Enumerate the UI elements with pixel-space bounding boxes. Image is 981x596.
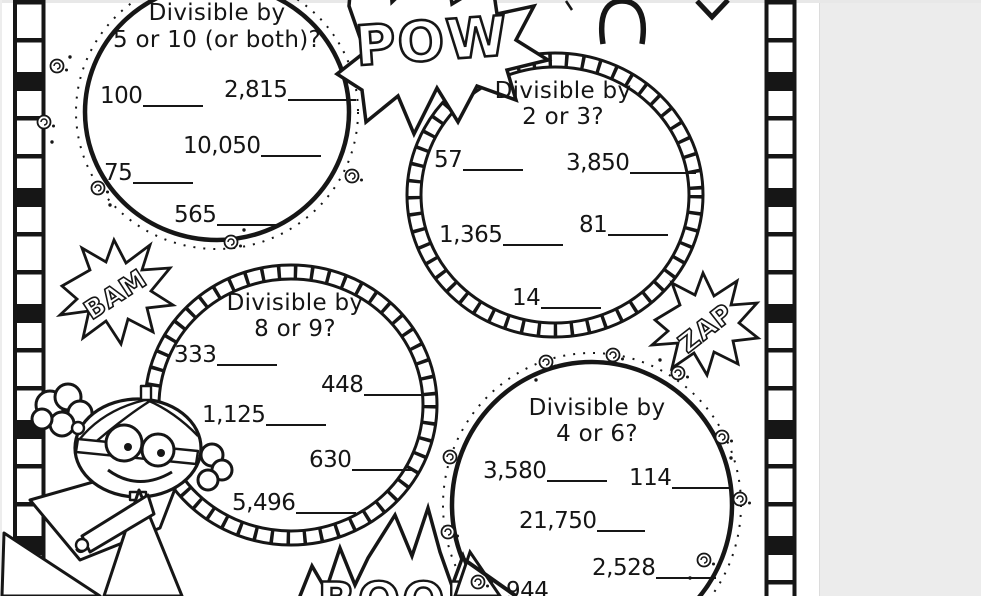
answer-blank — [672, 471, 732, 489]
circle-title-line2: 4 or 6? — [467, 421, 727, 447]
worksheet-item: 81 — [579, 212, 668, 238]
worksheet-item: 10,050 — [183, 133, 321, 159]
worksheet-item: 944 — [506, 578, 548, 596]
answer-blank — [352, 453, 412, 471]
worksheet-item: 565 — [174, 202, 277, 228]
worksheet-item: 75 — [104, 160, 193, 186]
worksheet-item: 630 — [309, 447, 412, 473]
answer-blank — [261, 139, 321, 157]
answer-blank — [217, 348, 277, 366]
circle-title-line1: Divisible by — [165, 290, 425, 316]
circle-title-line2: 5 or 10 (or both)? — [87, 27, 347, 53]
worksheet-item: 14 — [512, 285, 601, 311]
answer-blank — [133, 166, 193, 184]
circle-title-line1: Divisible by — [467, 395, 727, 421]
worksheet-item: 3,580 — [483, 458, 607, 484]
worksheet-item: 5,496 — [232, 490, 356, 516]
answer-blank — [217, 208, 277, 226]
answer-blank — [608, 218, 668, 236]
worksheet-item: 21,750 — [519, 508, 645, 534]
answer-blank — [288, 83, 356, 101]
answer-blank — [630, 156, 696, 174]
circle-title-line1: Divisible by — [433, 78, 693, 104]
top-edge-doodles — [566, 0, 728, 44]
answer-blank — [266, 408, 326, 426]
answer-blank — [143, 89, 203, 107]
answer-blank — [547, 464, 607, 482]
answer-blank — [656, 561, 716, 579]
answer-blank — [503, 228, 563, 246]
answer-blank — [463, 153, 523, 171]
circle-title-line2: 2 or 3? — [433, 104, 693, 130]
pow-text: POW — [353, 4, 511, 79]
circle-title-line2: 8 or 9? — [165, 316, 425, 342]
circle-title-line1: Divisible by — [87, 0, 347, 26]
answer-blank — [296, 496, 356, 514]
worksheet-item: 3,850 — [566, 150, 696, 176]
worksheet-item: 1,365 — [439, 222, 563, 248]
worksheet-item: 1,125 — [202, 402, 326, 428]
worksheet-item: 57 — [434, 147, 523, 173]
worksheet-item: 100 — [100, 83, 203, 109]
worksheet-item: 2,815 — [224, 77, 356, 103]
bam-burst: BAM — [60, 240, 173, 344]
right-filmstrip-border — [765, 0, 797, 596]
answer-blank — [364, 378, 424, 396]
worksheet-item: 448 — [321, 372, 424, 398]
answer-blank — [541, 291, 601, 309]
answer-blank — [597, 514, 645, 532]
worksheet-item: 2,528 — [592, 555, 716, 581]
worksheet-page: BAM POW ZAP — [0, 0, 981, 596]
worksheet-item: 114 — [629, 465, 732, 491]
worksheet-item: 333 — [174, 342, 277, 368]
